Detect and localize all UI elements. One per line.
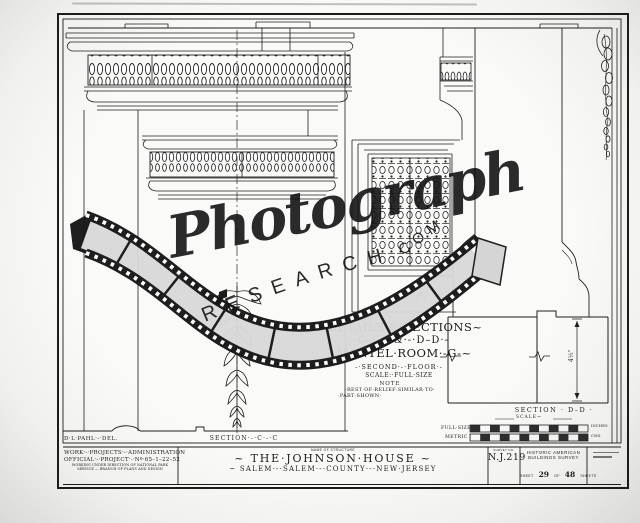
illegible-text-line xyxy=(593,452,619,453)
sheet-mid: OF xyxy=(554,474,560,478)
sheet-total: 48 xyxy=(565,470,575,479)
structure-name-box: NAME OF STRUCTURE ~ THE·JOHNSON·HOUSE ~ … xyxy=(178,448,488,473)
drawing-title-line4: -·SECOND·-·FLOOR·- xyxy=(318,363,480,371)
section-dd-label: SECTION · D–D · xyxy=(498,406,610,414)
scale-cms-label: CMS. xyxy=(591,434,602,438)
title-block-right-box xyxy=(593,452,619,458)
sheet-post: SHEETS xyxy=(580,474,596,478)
survey-number: N.J.219 xyxy=(488,452,520,463)
structure-name: ~ THE·JOHNSON·HOUSE ~ xyxy=(178,452,488,465)
lower-cornice xyxy=(142,136,338,199)
drawing-title-block: ~DETAILS·&·SECTIONS~ -·C–C·-·&·-·D–D·- ~… xyxy=(318,320,480,379)
scale-bars xyxy=(470,419,588,441)
habs-line2: BUILDINGS SURVEY xyxy=(520,455,587,460)
sheet-count: SHEET 29 OF 48 SHEETS xyxy=(520,462,587,481)
sheet-pre: SHEET xyxy=(520,474,533,478)
drawing-title-line3: ~MANTEL·ROOM·-G-~ xyxy=(318,346,480,360)
mantel-panel xyxy=(352,140,460,312)
cornice-fragment xyxy=(440,28,473,140)
section-cc-label: SECTION·-·C·-·C xyxy=(188,435,300,442)
scale-metric-label: METRIC xyxy=(445,435,468,440)
habs-box: HISTORIC AMERICAN BUILDINGS SURVEY SHEET… xyxy=(520,450,587,481)
survey-number-box: SURVEY NO. N.J.219 xyxy=(488,448,520,463)
sheet-number: 29 xyxy=(539,470,549,479)
scale-full-size-label: FULL·SIZE xyxy=(441,426,471,431)
column-section xyxy=(453,28,589,317)
ground-line xyxy=(63,426,348,431)
structure-location: ~ SALEM·-·SALEM·-·COUNTY·-·NEW·JERSEY xyxy=(178,465,488,473)
wpa-title-box: WORK·-·PROJECTS·-·ADMINISTRATION OFFICIA… xyxy=(64,450,176,472)
dimension-label: 4½" xyxy=(568,349,575,362)
wpa-line3: WORKING UNDER DIRECTION OF NATIONAL PARK… xyxy=(64,464,176,472)
right-border-garland xyxy=(597,28,617,443)
drawing-title-line1: ~DETAILS·&·SECTIONS~ xyxy=(318,320,480,334)
note-line2: ·PART·SHOWN· xyxy=(330,393,450,399)
drawing-title-line2: -·C–C·-·&·-·D–D·- xyxy=(318,335,480,346)
drawing-note: NOTE ·REST·OF·RELIEF·SIMILAR·TO· ·PART·S… xyxy=(330,381,450,399)
foliate-drop-ornament xyxy=(213,286,261,428)
wpa-line1: WORK·-·PROJECTS·-·ADMINISTRATION xyxy=(64,450,176,457)
architectural-drawing: 4½" xyxy=(0,0,640,523)
scale-heading: SCALE→ xyxy=(516,415,542,420)
delineator-credit: D·L·PAHL·-·DEL. xyxy=(64,436,118,442)
drawing-title-line5: SCALE:·FULL·SIZE xyxy=(318,372,480,379)
illegible-text-line xyxy=(593,456,612,457)
scale-inches-label: INCHES xyxy=(591,424,608,428)
